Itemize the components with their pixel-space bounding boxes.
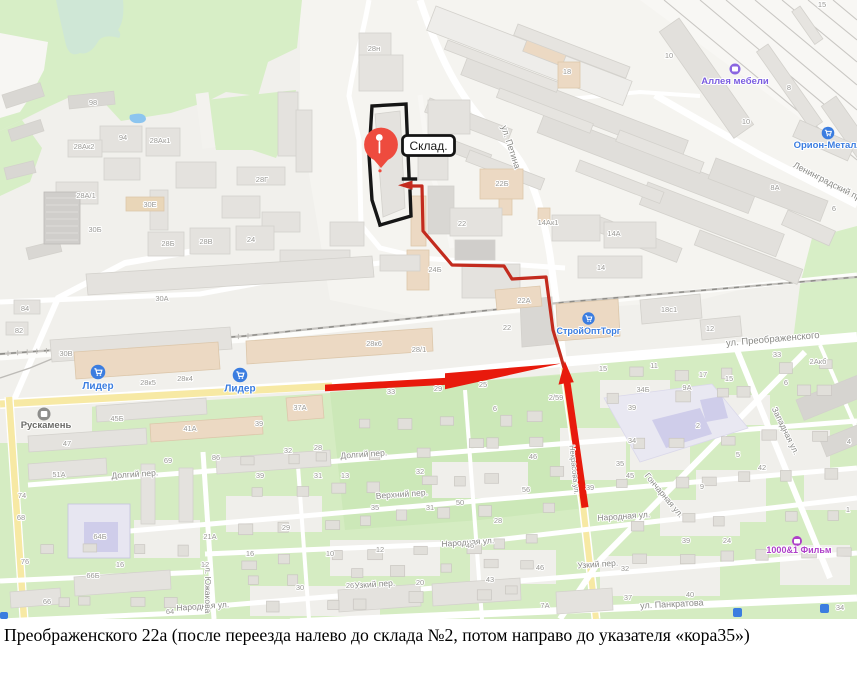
svg-text:6: 6 [493, 404, 497, 413]
svg-text:33: 33 [773, 350, 781, 359]
svg-text:10: 10 [326, 549, 334, 558]
svg-text:30А: 30А [155, 294, 168, 303]
svg-text:43: 43 [486, 575, 494, 584]
svg-text:2: 2 [696, 421, 700, 430]
svg-text:28: 28 [314, 443, 322, 452]
svg-text:29: 29 [282, 523, 290, 532]
svg-text:74: 74 [18, 491, 26, 500]
svg-text:14А: 14А [607, 229, 620, 238]
svg-text:28А/1: 28А/1 [76, 191, 96, 200]
svg-text:ул. Южакова: ул. Южакова [203, 563, 213, 614]
svg-text:64: 64 [166, 607, 174, 616]
svg-text:4: 4 [847, 437, 851, 446]
svg-text:51А: 51А [52, 470, 65, 479]
svg-text:41А: 41А [183, 424, 196, 433]
svg-text:16: 16 [116, 560, 124, 569]
svg-text:30Б: 30Б [88, 225, 101, 234]
svg-text:69: 69 [164, 456, 172, 465]
svg-text:14: 14 [597, 263, 605, 272]
svg-text:17: 17 [699, 370, 707, 379]
svg-text:35: 35 [616, 459, 624, 468]
svg-text:28к5: 28к5 [140, 378, 156, 387]
svg-text:39: 39 [255, 419, 263, 428]
svg-text:8: 8 [787, 83, 791, 92]
svg-text:66Б: 66Б [86, 571, 99, 580]
svg-text:24: 24 [723, 536, 731, 545]
svg-text:12: 12 [201, 560, 209, 569]
svg-text:39: 39 [628, 403, 636, 412]
svg-text:30: 30 [296, 583, 304, 592]
svg-text:22: 22 [458, 219, 466, 228]
svg-text:50: 50 [456, 498, 464, 507]
svg-text:98: 98 [89, 98, 97, 107]
svg-text:40: 40 [686, 590, 694, 599]
svg-text:24: 24 [247, 235, 255, 244]
svg-text:21А: 21А [203, 532, 216, 541]
svg-text:45: 45 [626, 471, 634, 480]
svg-text:11: 11 [650, 361, 658, 370]
svg-text:28Ак1: 28Ак1 [150, 136, 171, 145]
svg-text:15: 15 [725, 374, 733, 383]
svg-text:Аллея мебели: Аллея мебели [701, 76, 769, 87]
svg-text:15: 15 [818, 0, 826, 9]
svg-text:68: 68 [17, 513, 25, 522]
svg-text:6: 6 [784, 378, 788, 387]
svg-text:28Б: 28Б [161, 239, 174, 248]
svg-text:64Б: 64Б [93, 532, 106, 541]
svg-text:28н: 28н [368, 44, 380, 53]
svg-text:24Б: 24Б [428, 265, 441, 274]
svg-text:22Б: 22Б [495, 179, 508, 188]
svg-text:46: 46 [466, 541, 474, 550]
svg-text:28В: 28В [199, 237, 212, 246]
svg-text:31: 31 [314, 471, 322, 480]
svg-text:39: 39 [586, 483, 594, 492]
svg-text:28Ак2: 28Ак2 [74, 142, 95, 151]
svg-text:30В: 30В [59, 349, 72, 358]
svg-text:2/59: 2/59 [549, 393, 564, 402]
svg-text:84: 84 [21, 304, 29, 313]
svg-text:32: 32 [284, 446, 292, 455]
svg-text:14Ак1: 14Ак1 [538, 218, 559, 227]
svg-text:46: 46 [536, 563, 544, 572]
svg-text:Рускамень: Рускамень [21, 420, 72, 431]
svg-text:76: 76 [21, 557, 29, 566]
svg-text:1: 1 [846, 505, 850, 514]
svg-text:37: 37 [624, 593, 632, 602]
svg-text:9А: 9А [682, 383, 691, 392]
svg-text:Склад.: Склад. [409, 139, 447, 153]
svg-text:Орион-Металл: Орион-Металл [794, 140, 857, 151]
svg-text:Лидер: Лидер [82, 381, 113, 392]
svg-text:56: 56 [522, 485, 530, 494]
svg-text:28Г: 28Г [256, 175, 268, 184]
svg-text:47: 47 [63, 439, 71, 448]
svg-text:39: 39 [256, 471, 264, 480]
svg-text:5: 5 [736, 450, 740, 459]
svg-text:22: 22 [503, 323, 511, 332]
svg-text:СтройОптТорг: СтройОптТорг [557, 326, 621, 336]
svg-text:28/1: 28/1 [412, 345, 427, 354]
svg-text:28к4: 28к4 [177, 374, 193, 383]
svg-text:12: 12 [376, 545, 384, 554]
svg-text:7А: 7А [540, 601, 549, 610]
svg-text:13: 13 [341, 471, 349, 480]
svg-text:82: 82 [15, 326, 23, 335]
svg-text:25: 25 [479, 380, 487, 389]
svg-text:16: 16 [246, 549, 254, 558]
svg-text:Преображенского 22а (после пер: Преображенского 22а (после переезда нале… [4, 625, 750, 645]
svg-text:Лидер: Лидер [224, 384, 255, 395]
svg-text:28: 28 [494, 516, 502, 525]
svg-text:34: 34 [836, 603, 844, 612]
svg-text:32: 32 [621, 564, 629, 573]
svg-text:45Б: 45Б [110, 414, 123, 423]
svg-text:22А: 22А [517, 296, 530, 305]
svg-text:39: 39 [682, 536, 690, 545]
svg-text:28к6: 28к6 [366, 339, 382, 348]
svg-text:34Б: 34Б [636, 385, 649, 394]
svg-text:18с1: 18с1 [661, 305, 677, 314]
svg-text:46: 46 [529, 452, 537, 461]
svg-text:94: 94 [119, 133, 127, 142]
svg-text:86: 86 [212, 453, 220, 462]
svg-text:31: 31 [426, 503, 434, 512]
svg-text:26: 26 [346, 581, 354, 590]
svg-text:1000&1 Фильм: 1000&1 Фильм [766, 545, 831, 555]
svg-text:35: 35 [371, 503, 379, 512]
svg-text:8А: 8А [770, 183, 779, 192]
svg-text:66: 66 [43, 597, 51, 606]
svg-text:10: 10 [742, 117, 750, 126]
svg-text:32: 32 [416, 467, 424, 476]
svg-text:2Акб: 2Акб [810, 357, 827, 366]
svg-text:42: 42 [758, 463, 766, 472]
svg-text:37А: 37А [293, 403, 306, 412]
svg-text:20: 20 [416, 578, 424, 587]
svg-text:18: 18 [563, 67, 571, 76]
svg-text:29: 29 [434, 384, 442, 393]
svg-text:34: 34 [628, 436, 636, 445]
svg-text:10: 10 [665, 51, 673, 60]
svg-text:12: 12 [706, 324, 714, 333]
svg-text:33: 33 [387, 387, 395, 396]
svg-text:6: 6 [832, 204, 836, 213]
svg-text:9: 9 [700, 482, 704, 491]
svg-text:30Е: 30Е [143, 200, 156, 209]
svg-text:15: 15 [599, 364, 607, 373]
